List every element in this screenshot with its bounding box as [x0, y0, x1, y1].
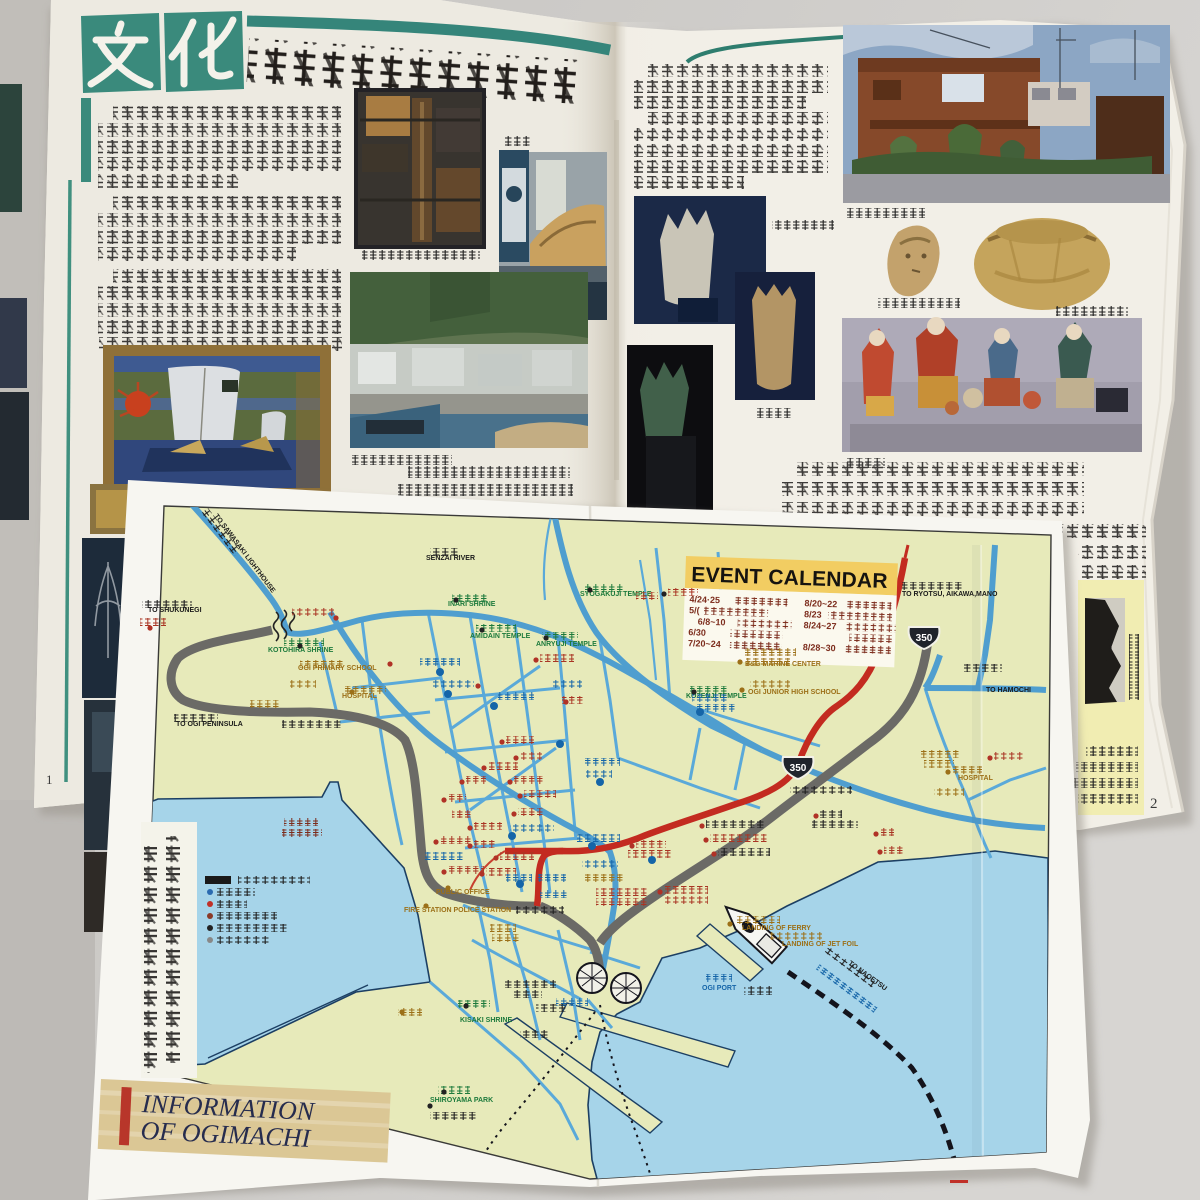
svg-text:8/24~27: 8/24~27	[803, 620, 836, 631]
svg-text:1: 1	[46, 772, 53, 787]
svg-text:HOSPITAL: HOSPITAL	[958, 775, 994, 782]
svg-text:TO OGI PENINSULA: TO OGI PENINSULA	[176, 721, 243, 728]
svg-text:7/20~24: 7/20~24	[688, 638, 721, 649]
svg-text:TO HAMOCHI: TO HAMOCHI	[986, 687, 1031, 694]
svg-text:LANDING OF JET FOIL: LANDING OF JET FOIL	[782, 941, 859, 948]
svg-text:8/20~22: 8/20~22	[804, 598, 837, 609]
svg-text:SHIROYAMA PARK: SHIROYAMA PARK	[430, 1097, 493, 1104]
svg-text:350: 350	[790, 763, 807, 774]
svg-text:AMIDAIN TEMPLE: AMIDAIN TEMPLE	[470, 633, 531, 640]
svg-text:8/23: 8/23	[804, 609, 822, 620]
svg-text:OGI JUNIOR HIGH SCHOOL: OGI JUNIOR HIGH SCHOOL	[748, 689, 841, 696]
svg-text:SENZAI RIVER: SENZAI RIVER	[426, 555, 475, 562]
svg-text:5/(: 5/(	[689, 605, 700, 615]
svg-text:HOSPITAL: HOSPITAL	[342, 693, 378, 700]
svg-text:PUBLIC OFFICE: PUBLIC OFFICE	[436, 889, 490, 896]
svg-text:KISAKI SHRINE: KISAKI SHRINE	[460, 1017, 512, 1024]
svg-text:FIRE STATION POLICE STATION: FIRE STATION POLICE STATION	[404, 907, 511, 914]
svg-text:350: 350	[916, 633, 933, 644]
svg-text:TO SHUKUNEGI: TO SHUKUNEGI	[148, 607, 202, 614]
svg-text:2: 2	[1150, 796, 1158, 812]
svg-text:6/8~10: 6/8~10	[698, 616, 726, 627]
svg-text:TO RYOTSU, AIKAWA,MANO: TO RYOTSU, AIKAWA,MANO	[902, 591, 998, 598]
svg-text:8/28~30: 8/28~30	[803, 642, 836, 653]
svg-text:LANDING OF FERRY: LANDING OF FERRY	[742, 925, 811, 932]
svg-text:OGI PORT: OGI PORT	[702, 985, 737, 992]
svg-text:ANRYUJI TEMPLE: ANRYUJI TEMPLE	[536, 641, 597, 648]
svg-text:6/30: 6/30	[688, 627, 706, 638]
